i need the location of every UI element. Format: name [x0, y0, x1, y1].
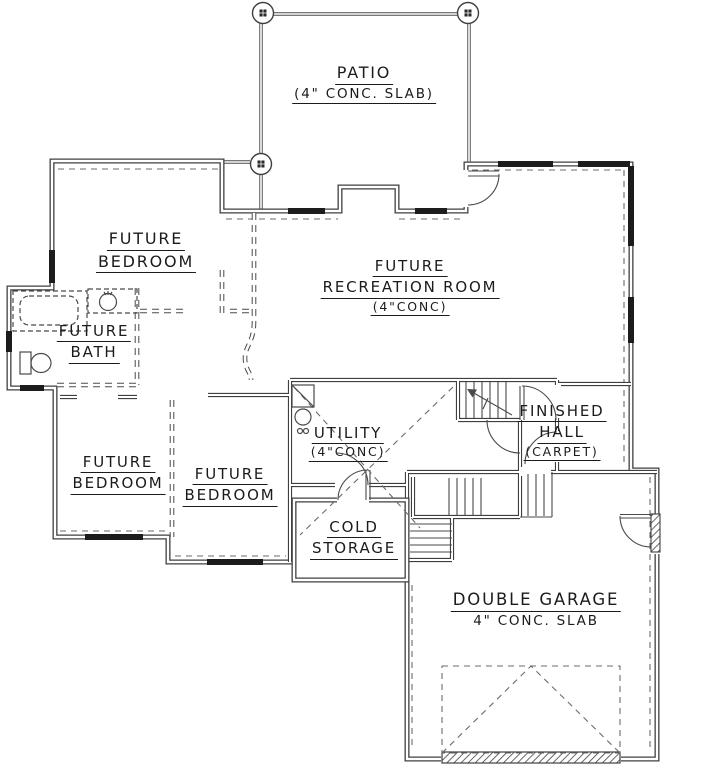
room-label-future-bedroom-s: FUTURE BEDROOM — [183, 464, 278, 507]
column-icon — [251, 154, 272, 175]
water-heater-icon — [292, 385, 314, 407]
room-label-patio: PATIO (4" CONC. SLAB) — [292, 62, 436, 104]
garage-overhead-door — [442, 752, 620, 763]
patio-name: PATIO — [335, 62, 393, 85]
door-swings — [336, 171, 651, 547]
room-label-cold-storage: COLD STORAGE — [310, 517, 398, 560]
room-label-utility: UTILITY (4"CONC) — [309, 423, 388, 462]
room-label-future-recreation-room: FUTURE RECREATION ROOM (4"CONC) — [321, 256, 500, 316]
room-label-future-bath: FUTURE BATH — [57, 321, 131, 364]
toilet-icon — [20, 352, 51, 374]
garage-door-swing-triangle — [442, 666, 620, 753]
garage-man-door — [620, 514, 660, 552]
column-icon — [458, 3, 479, 24]
room-label-future-bedroom-nw: FUTURE BEDROOM — [96, 228, 196, 273]
garage-staircase — [410, 472, 552, 552]
floor-plan: PATIO (4" CONC. SLAB) FUTURE BEDROOM FUT… — [0, 0, 725, 768]
room-label-finished-hall: FINISHED HALL (CARPET) — [518, 401, 607, 461]
floor-plan-drawing — [0, 0, 725, 768]
room-label-double-garage: DOUBLE GARAGE 4" CONC. SLAB — [451, 589, 621, 630]
patio-note: (4" CONC. SLAB) — [292, 85, 436, 104]
column-icon — [253, 3, 274, 24]
room-label-future-bedroom-sw: FUTURE BEDROOM — [71, 452, 166, 495]
patio-outline — [222, 14, 469, 209]
sink-icon — [100, 291, 117, 311]
